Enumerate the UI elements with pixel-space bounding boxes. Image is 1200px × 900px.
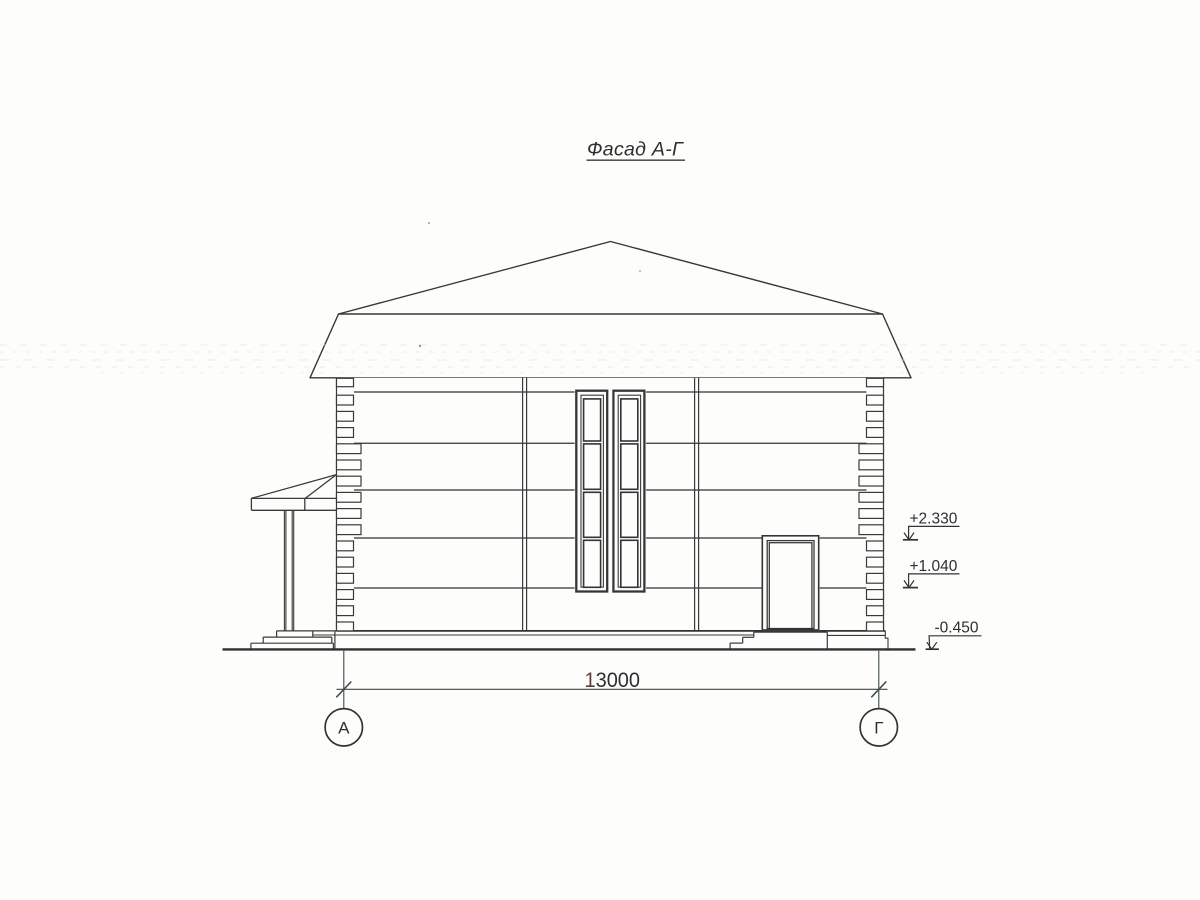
- svg-text:13000: 13000: [585, 669, 641, 692]
- svg-text:А: А: [338, 719, 350, 738]
- svg-text:Г: Г: [874, 719, 883, 738]
- svg-text:-0.450: -0.450: [935, 620, 979, 637]
- svg-text:+1.040: +1.040: [910, 558, 958, 575]
- svg-text:+2.330: +2.330: [910, 510, 958, 527]
- svg-text:Фасад А-Г: Фасад А-Г: [587, 139, 684, 161]
